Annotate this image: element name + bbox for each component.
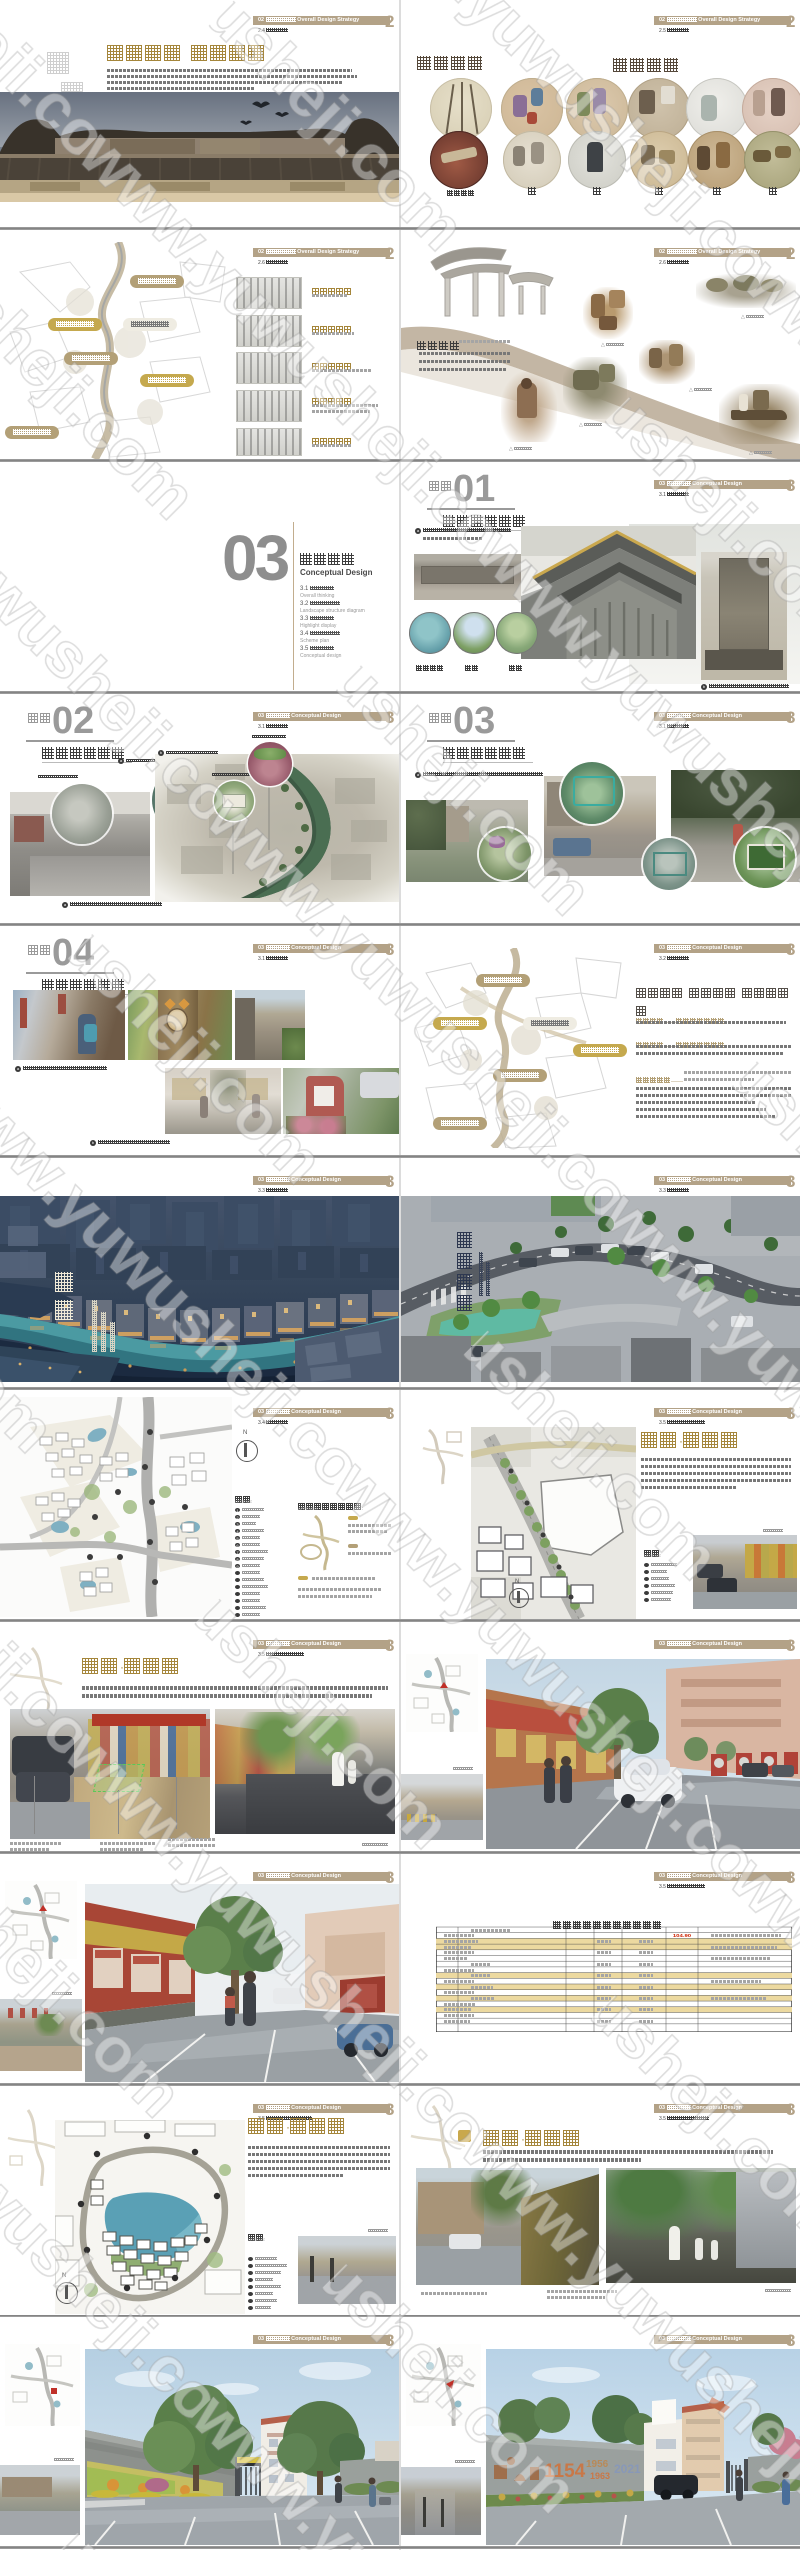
- svg-text:1154: 1154: [544, 2461, 586, 2482]
- svg-text:1963: 1963: [590, 2471, 610, 2481]
- svg-text:2021: 2021: [614, 2462, 641, 2476]
- svg-text:104.90: 104.90: [673, 1934, 691, 1939]
- svg-text:1956: 1956: [586, 2459, 609, 2470]
